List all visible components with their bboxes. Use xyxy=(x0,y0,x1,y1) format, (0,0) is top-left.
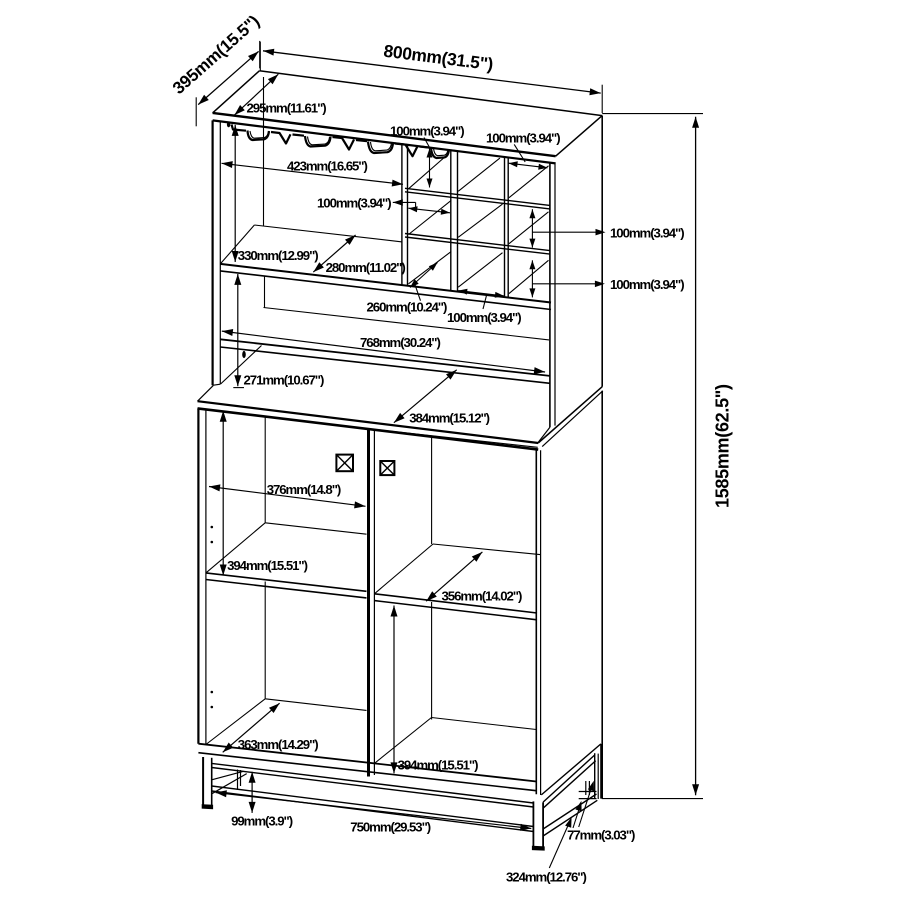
svg-text:100mm(3.94"): 100mm(3.94") xyxy=(317,196,391,211)
svg-text:100mm(3.94"): 100mm(3.94") xyxy=(486,130,560,145)
svg-text:271mm(10.67"): 271mm(10.67") xyxy=(244,372,324,387)
svg-text:356mm(14.02"): 356mm(14.02") xyxy=(442,588,522,603)
svg-text:77mm(3.03"): 77mm(3.03") xyxy=(567,827,635,842)
svg-text:100mm(3.94"): 100mm(3.94") xyxy=(390,124,464,139)
svg-text:384mm(15.12"): 384mm(15.12") xyxy=(409,411,489,426)
svg-text:260mm(10.24"): 260mm(10.24") xyxy=(367,300,447,315)
svg-text:295mm(11.61"): 295mm(11.61") xyxy=(247,100,327,115)
svg-text:768mm(30.24"): 768mm(30.24") xyxy=(360,335,440,350)
svg-text:1585mm(62.5"): 1585mm(62.5") xyxy=(713,384,733,508)
svg-text:363mm(14.29"): 363mm(14.29") xyxy=(238,737,318,752)
svg-text:423mm(16.65"): 423mm(16.65") xyxy=(287,158,367,173)
svg-text:100mm(3.94"): 100mm(3.94") xyxy=(610,277,684,292)
svg-text:376mm(14.8"): 376mm(14.8") xyxy=(267,482,341,497)
svg-text:750mm(29.53"): 750mm(29.53") xyxy=(350,819,430,834)
svg-text:99mm(3.9"): 99mm(3.9") xyxy=(231,813,293,828)
svg-text:100mm(3.94"): 100mm(3.94") xyxy=(610,225,684,240)
svg-text:324mm(12.76"): 324mm(12.76") xyxy=(506,870,586,885)
svg-text:394mm(15.51"): 394mm(15.51") xyxy=(227,558,307,573)
svg-text:394mm(15.51"): 394mm(15.51") xyxy=(398,757,478,772)
svg-text:280mm(11.02"): 280mm(11.02") xyxy=(326,260,406,275)
svg-text:330mm(12.99"): 330mm(12.99") xyxy=(238,248,318,263)
svg-text:100mm(3.94"): 100mm(3.94") xyxy=(447,310,521,325)
